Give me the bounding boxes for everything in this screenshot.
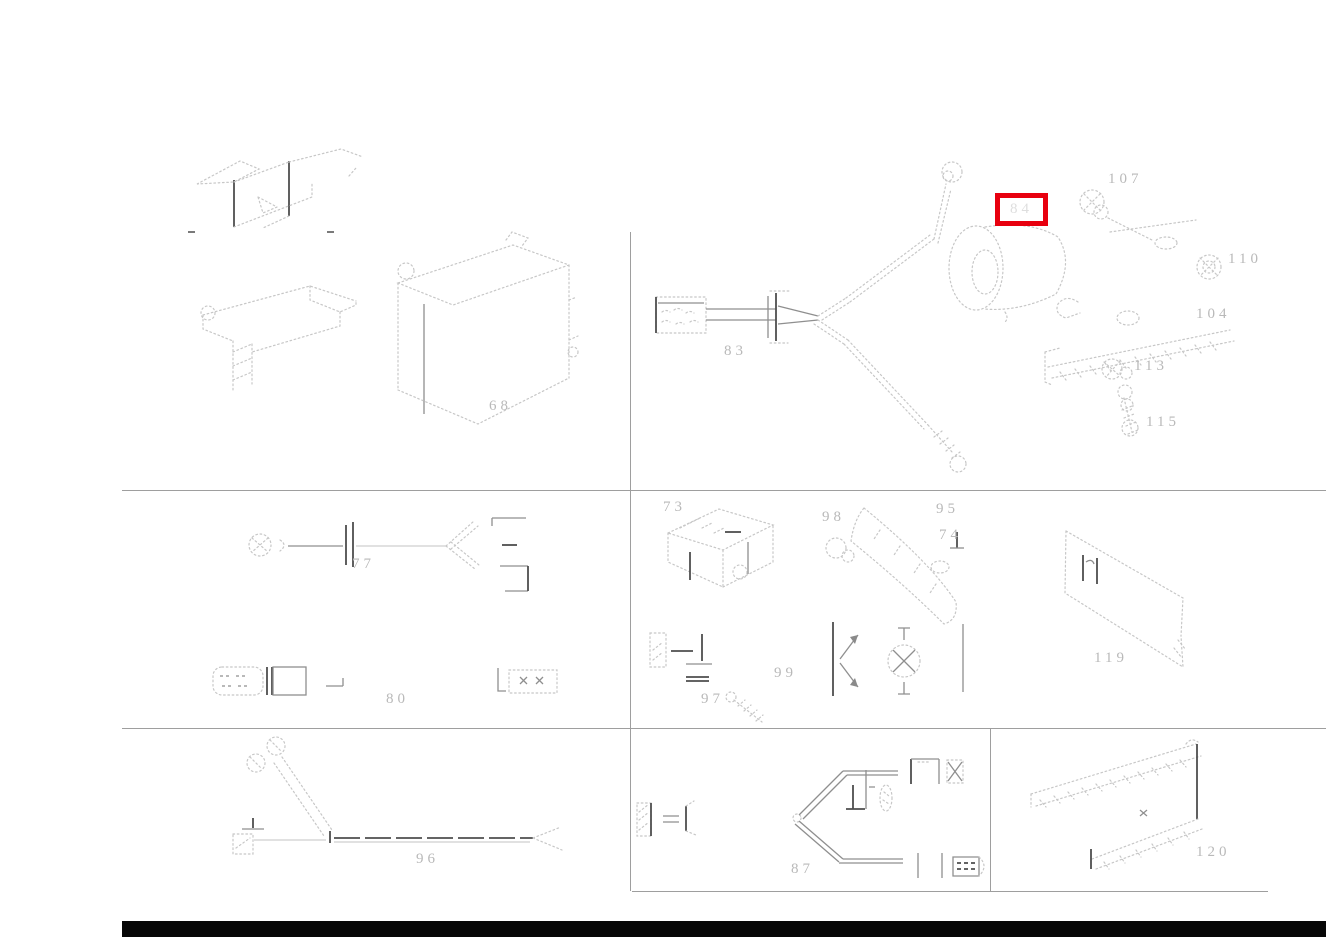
lock-nut-drawing: [1197, 255, 1221, 279]
relay-connector-block-drawing: [668, 509, 773, 587]
washer-set-drawing: [1102, 359, 1132, 379]
panel-divider-horizontal-1: [122, 490, 1326, 491]
footer-bar: [122, 921, 1326, 937]
horn-drawing: [949, 225, 1066, 322]
diagram-line-art: [0, 0, 1326, 937]
part-label-antenna-cable[interactable]: 77: [352, 556, 375, 573]
parts-diagram-page: 68 83 107 110 104 113 115 77 80 96 73 98…: [0, 0, 1326, 937]
fastener-detail-drawing: [833, 622, 963, 696]
part-label-lock-nut[interactable]: 110: [1228, 251, 1262, 268]
panel-divider-vertical-1: [630, 232, 631, 891]
part-label-cover-panel[interactable]: 119: [1094, 650, 1128, 667]
sill-strip-drawing: [1031, 740, 1202, 869]
part-label-small-screw[interactable]: 97: [701, 691, 724, 708]
screw-top-drawing: [934, 162, 962, 243]
panel-divider-horizontal-3: [632, 891, 1268, 892]
part-label-rear-harness[interactable]: 96: [416, 851, 439, 868]
part-label-fork-harness[interactable]: 87: [791, 861, 814, 878]
panel-divider-vertical-2: [990, 728, 991, 891]
part-label-screw-assembly[interactable]: 107: [1108, 171, 1143, 188]
border-tick-right: [327, 231, 334, 233]
small-screw-drawing: [726, 692, 763, 722]
hex-screw-drawing: [1118, 385, 1138, 436]
part-label-highlighted[interactable]: 84: [1010, 201, 1033, 218]
mounting-bracket-drawing: [201, 286, 356, 392]
rear-harness-drawing: [233, 737, 562, 854]
mounting-arm-drawing: [826, 508, 956, 624]
fuse-holder-drawing: [650, 633, 712, 681]
antenna-cable-drawing: [249, 518, 528, 591]
bracket-holder-drawing: [197, 149, 363, 228]
cover-panel-drawing: [1065, 531, 1186, 667]
part-label-control-unit[interactable]: 68: [489, 398, 512, 415]
highlight-box[interactable]: 84: [995, 193, 1048, 226]
horn-harness-drawing: [656, 235, 966, 472]
terminal-pieces-drawing: [637, 801, 696, 836]
part-label-washers[interactable]: 113: [1134, 358, 1168, 375]
screw-washer-assembly-drawing: [1080, 190, 1196, 249]
part-label-sleeve[interactable]: 80: [386, 691, 409, 708]
part-label-harness[interactable]: 83: [724, 343, 747, 360]
panel-divider-horizontal-2: [122, 728, 1326, 729]
part-label-bracket[interactable]: 104: [1196, 306, 1231, 323]
part-label-sill-strip[interactable]: 120: [1196, 844, 1231, 861]
part-label-grommet[interactable]: 74: [939, 527, 962, 544]
part-label-relay-block[interactable]: 73: [663, 499, 686, 516]
control-module-drawing: [398, 232, 578, 424]
part-label-cable-clip[interactable]: 99: [774, 665, 797, 682]
fork-harness-drawing: [793, 759, 984, 878]
connector-sleeve-drawing: [213, 667, 557, 695]
part-label-screw[interactable]: 115: [1146, 414, 1180, 431]
part-label-clip[interactable]: 95: [936, 501, 959, 518]
border-tick-left: [188, 231, 195, 233]
part-label-arm[interactable]: 98: [822, 509, 845, 526]
